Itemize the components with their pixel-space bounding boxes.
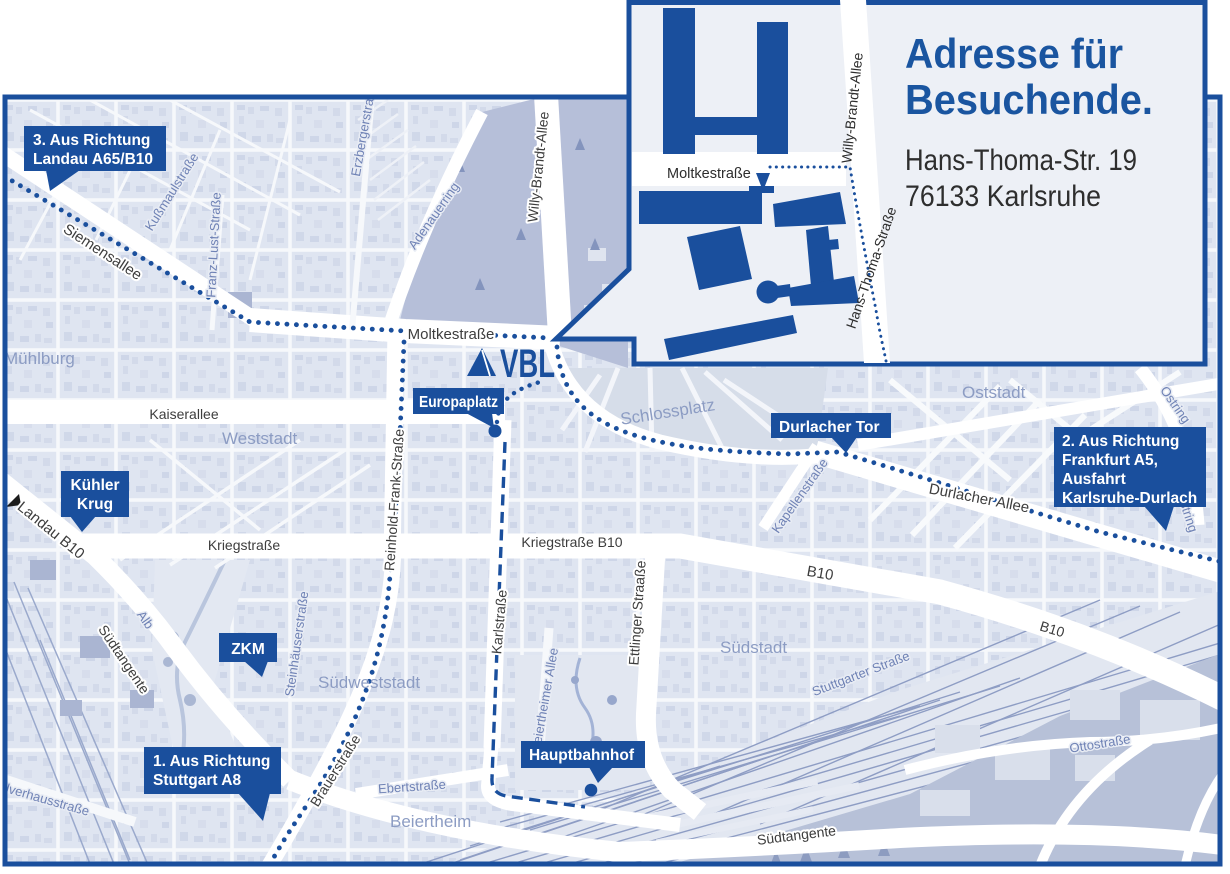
svg-text:Krug: Krug	[77, 496, 113, 513]
svg-text:Beiertheim: Beiertheim	[390, 812, 471, 831]
svg-text:Moltkestraße: Moltkestraße	[667, 166, 751, 182]
svg-text:Adresse für: Adresse für	[905, 30, 1123, 77]
svg-text:Ausfahrt: Ausfahrt	[1062, 471, 1126, 488]
svg-text:Frankfurt A5,: Frankfurt A5,	[1062, 452, 1158, 469]
svg-text:Kaiserallee: Kaiserallee	[149, 406, 218, 422]
svg-text:Kühler: Kühler	[70, 477, 119, 494]
svg-text:Hans-Thoma-Str. 19: Hans-Thoma-Str. 19	[905, 144, 1137, 177]
svg-text:Moltkestraße: Moltkestraße	[408, 326, 495, 343]
svg-text:Landau A65/B10: Landau A65/B10	[33, 151, 153, 168]
svg-text:Südweststadt: Südweststadt	[318, 673, 420, 692]
svg-text:Oststadt: Oststadt	[962, 383, 1026, 402]
svg-text:Südstadt: Südstadt	[720, 638, 787, 657]
svg-text:Kriegstraße B10: Kriegstraße B10	[521, 534, 622, 550]
svg-text:Europaplatz: Europaplatz	[419, 394, 498, 411]
svg-text:ZKM: ZKM	[231, 641, 265, 658]
svg-text:VBL: VBL	[500, 342, 555, 386]
svg-text:Durlacher Tor: Durlacher Tor	[779, 419, 880, 436]
svg-text:Besuchende.: Besuchende.	[905, 76, 1153, 123]
svg-text:Hauptbahnhof: Hauptbahnhof	[529, 747, 635, 764]
svg-text:Karlsruhe-Durlach: Karlsruhe-Durlach	[1062, 490, 1197, 507]
svg-text:76133 Karlsruhe: 76133 Karlsruhe	[905, 180, 1101, 213]
svg-text:Kriegstraße: Kriegstraße	[208, 537, 281, 553]
svg-text:3. Aus Richtung: 3. Aus Richtung	[33, 132, 150, 149]
svg-text:Weststadt: Weststadt	[222, 429, 298, 448]
svg-text:1. Aus Richtung: 1. Aus Richtung	[153, 753, 270, 770]
svg-text:Mühlburg: Mühlburg	[4, 349, 75, 368]
svg-text:Stuttgart A8: Stuttgart A8	[153, 772, 241, 789]
svg-text:2. Aus Richtung: 2. Aus Richtung	[1062, 433, 1179, 450]
